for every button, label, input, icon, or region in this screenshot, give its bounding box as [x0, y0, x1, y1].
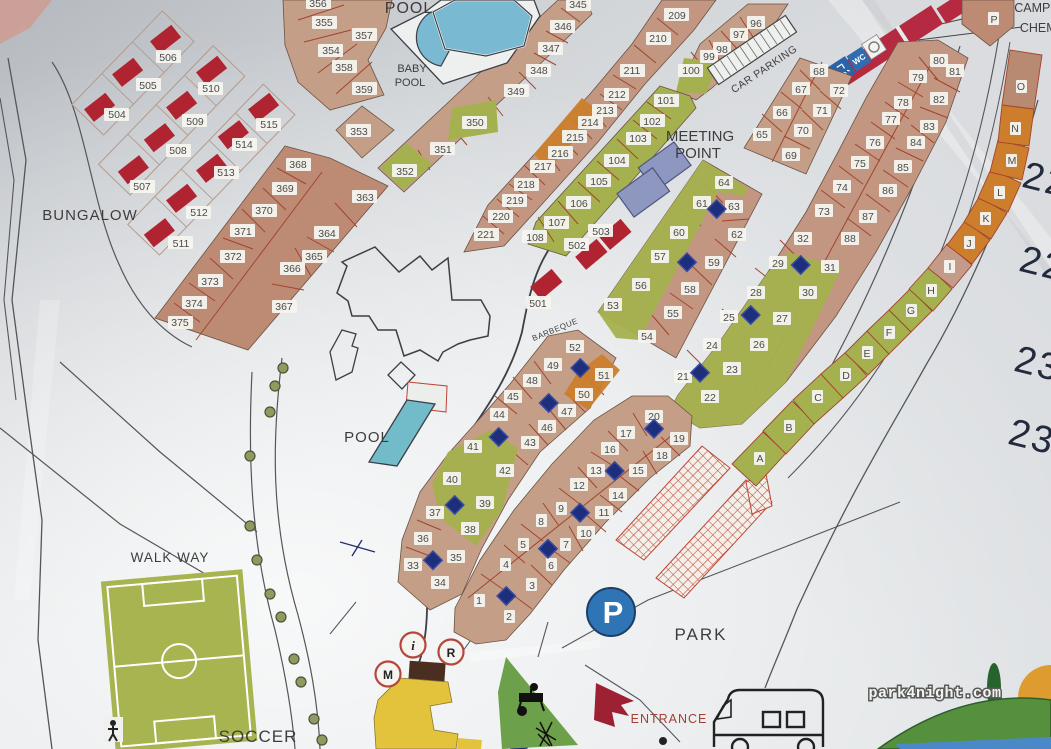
svg-text:508: 508: [169, 145, 187, 157]
svg-text:27: 27: [776, 313, 788, 325]
svg-text:CAMPI: CAMPI: [1014, 1, 1051, 15]
svg-text:47: 47: [561, 406, 573, 418]
svg-text:372: 372: [224, 251, 242, 263]
svg-text:39: 39: [479, 498, 491, 510]
svg-text:42: 42: [499, 465, 511, 477]
svg-text:347: 347: [542, 43, 560, 55]
svg-text:345: 345: [569, 0, 587, 11]
svg-text:44: 44: [493, 409, 505, 421]
svg-text:13: 13: [590, 465, 602, 477]
svg-text:349: 349: [507, 86, 525, 98]
svg-text:107: 107: [548, 217, 566, 229]
svg-text:507: 507: [133, 181, 151, 193]
svg-text:50: 50: [578, 389, 590, 401]
svg-text:348: 348: [530, 65, 548, 77]
svg-text:106: 106: [570, 198, 588, 210]
svg-text:71: 71: [816, 105, 828, 117]
svg-text:83: 83: [923, 121, 935, 133]
svg-text:E: E: [863, 348, 870, 360]
svg-text:218: 218: [517, 179, 535, 191]
svg-text:F: F: [886, 327, 892, 339]
svg-text:79: 79: [912, 72, 924, 84]
svg-text:346: 346: [554, 21, 572, 33]
svg-text:35: 35: [450, 552, 462, 564]
svg-text:513: 513: [217, 167, 235, 179]
svg-text:370: 370: [255, 205, 273, 217]
svg-text:46: 46: [541, 422, 553, 434]
svg-text:365: 365: [305, 251, 323, 263]
svg-text:21: 21: [677, 371, 689, 383]
svg-text:i: i: [411, 638, 415, 653]
svg-text:514: 514: [235, 139, 253, 151]
svg-text:501: 501: [529, 298, 547, 310]
svg-text:G: G: [907, 305, 915, 317]
svg-text:48: 48: [526, 375, 538, 387]
svg-text:88: 88: [844, 233, 856, 245]
svg-text:56: 56: [635, 280, 647, 292]
svg-text:357: 357: [355, 30, 373, 42]
svg-text:A: A: [756, 453, 763, 465]
svg-text:B: B: [785, 422, 792, 434]
svg-text:10: 10: [580, 528, 592, 540]
svg-text:66: 66: [776, 107, 788, 119]
svg-text:MEETING: MEETING: [666, 128, 734, 145]
svg-text:H: H: [927, 285, 935, 297]
svg-text:97: 97: [733, 29, 745, 41]
svg-text:POINT: POINT: [675, 145, 721, 162]
svg-text:31: 31: [824, 262, 836, 274]
svg-text:38: 38: [464, 524, 476, 536]
svg-text:512: 512: [190, 207, 208, 219]
svg-text:510: 510: [202, 83, 220, 95]
svg-text:K: K: [982, 213, 989, 225]
svg-text:64: 64: [718, 177, 730, 189]
svg-text:509: 509: [186, 116, 204, 128]
svg-text:33: 33: [407, 560, 419, 572]
svg-text:O: O: [1017, 81, 1025, 93]
svg-text:POOL: POOL: [385, 0, 433, 17]
svg-text:22: 22: [704, 392, 716, 404]
svg-text:9: 9: [558, 503, 564, 515]
svg-text:74: 74: [836, 182, 848, 194]
svg-text:211: 211: [624, 65, 641, 77]
svg-text:69: 69: [785, 150, 797, 162]
svg-text:363: 363: [356, 192, 374, 204]
svg-text:214: 214: [581, 117, 599, 129]
svg-text:374: 374: [185, 298, 203, 310]
svg-text:502: 502: [568, 240, 586, 252]
svg-text:11: 11: [599, 507, 610, 519]
svg-text:63: 63: [728, 201, 740, 213]
svg-text:503: 503: [592, 226, 610, 238]
svg-text:M: M: [383, 668, 393, 682]
svg-text:84: 84: [910, 137, 922, 149]
svg-text:2: 2: [506, 611, 512, 623]
svg-text:80: 80: [933, 55, 945, 67]
svg-text:WALK WAY: WALK WAY: [131, 550, 210, 565]
svg-text:102: 102: [643, 116, 661, 128]
svg-text:99: 99: [703, 51, 715, 63]
svg-text:68: 68: [813, 66, 825, 78]
svg-text:J: J: [966, 238, 971, 250]
svg-text:351: 351: [434, 144, 452, 156]
svg-text:54: 54: [641, 331, 653, 343]
svg-text:37: 37: [429, 507, 441, 519]
svg-text:85: 85: [897, 162, 909, 174]
svg-text:105: 105: [590, 176, 608, 188]
svg-text:354: 354: [322, 45, 340, 57]
svg-text:I: I: [949, 261, 952, 273]
svg-text:45: 45: [507, 391, 519, 403]
svg-text:30: 30: [802, 287, 814, 299]
svg-text:358: 358: [335, 62, 353, 74]
svg-text:367: 367: [275, 301, 293, 313]
svg-text:511: 511: [173, 238, 190, 250]
svg-text:49: 49: [547, 360, 559, 372]
svg-text:82: 82: [933, 94, 945, 106]
svg-text:32: 32: [797, 233, 809, 245]
svg-text:104: 104: [608, 155, 626, 167]
svg-text:375: 375: [171, 317, 189, 329]
svg-text:515: 515: [260, 119, 278, 131]
svg-text:215: 215: [566, 132, 584, 144]
svg-text:217: 217: [534, 161, 552, 173]
svg-text:350: 350: [466, 117, 484, 129]
svg-text:25: 25: [723, 312, 735, 324]
svg-text:220: 220: [492, 211, 510, 223]
svg-text:1: 1: [476, 595, 482, 607]
svg-text:60: 60: [673, 227, 685, 239]
svg-text:N: N: [1011, 123, 1019, 135]
svg-text:BUNGALOW: BUNGALOW: [42, 207, 138, 224]
svg-text:SOCCER: SOCCER: [219, 727, 298, 746]
svg-text:26: 26: [753, 339, 765, 351]
svg-text:29: 29: [772, 258, 784, 270]
svg-text:18: 18: [656, 450, 668, 462]
svg-text:216: 216: [551, 148, 569, 160]
svg-text:62: 62: [731, 229, 743, 241]
svg-text:65: 65: [756, 129, 768, 141]
svg-text:356: 356: [309, 0, 327, 10]
svg-text:366: 366: [283, 263, 301, 275]
svg-text:3: 3: [529, 580, 535, 592]
svg-text:M: M: [1008, 155, 1017, 167]
svg-text:5: 5: [520, 539, 526, 551]
svg-text:24: 24: [706, 340, 718, 352]
svg-text:4: 4: [503, 559, 509, 571]
svg-text:209: 209: [668, 10, 686, 22]
svg-text:108: 108: [526, 232, 544, 244]
svg-text:55: 55: [667, 308, 679, 320]
svg-text:40: 40: [446, 474, 458, 486]
svg-text:373: 373: [201, 276, 219, 288]
svg-text:POOL: POOL: [344, 429, 390, 446]
svg-text:51: 51: [598, 370, 610, 382]
svg-text:78: 78: [897, 97, 909, 109]
svg-text:8: 8: [538, 516, 544, 528]
svg-text:101: 101: [657, 95, 675, 107]
svg-text:58: 58: [684, 284, 696, 296]
svg-text:213: 213: [596, 105, 614, 117]
svg-text:369: 369: [276, 183, 294, 195]
svg-text:219: 219: [506, 195, 524, 207]
svg-text:364: 364: [318, 228, 336, 240]
svg-text:16: 16: [604, 444, 616, 456]
svg-text:210: 210: [649, 33, 667, 45]
svg-text:19: 19: [673, 433, 685, 445]
svg-text:103: 103: [629, 133, 647, 145]
svg-text:17: 17: [620, 428, 632, 440]
svg-text:61: 61: [696, 198, 708, 210]
svg-text:7: 7: [563, 539, 569, 551]
svg-text:504: 504: [108, 109, 126, 121]
svg-text:76: 76: [869, 137, 881, 149]
svg-text:R: R: [447, 646, 456, 660]
svg-text:park4night.com: park4night.com: [868, 685, 1001, 702]
svg-text:81: 81: [949, 66, 961, 78]
svg-text:87: 87: [862, 211, 874, 223]
svg-text:C: C: [814, 392, 822, 404]
svg-text:23: 23: [726, 364, 738, 376]
svg-text:14: 14: [612, 490, 624, 502]
svg-text:355: 355: [315, 17, 333, 29]
svg-text:52: 52: [569, 342, 581, 354]
svg-text:53: 53: [607, 300, 619, 312]
svg-text:352: 352: [396, 166, 414, 178]
svg-text:506: 506: [159, 52, 177, 64]
svg-text:67: 67: [795, 84, 807, 96]
svg-text:353: 353: [350, 126, 368, 138]
svg-text:36: 36: [417, 533, 429, 545]
svg-text:28: 28: [750, 287, 762, 299]
svg-text:86: 86: [882, 185, 894, 197]
svg-text:PARK: PARK: [674, 625, 727, 644]
svg-text:75: 75: [854, 158, 866, 170]
svg-text:P: P: [603, 595, 624, 630]
svg-text:D: D: [842, 370, 850, 382]
svg-text:371: 371: [234, 226, 252, 238]
svg-text:70: 70: [797, 125, 809, 137]
svg-text:368: 368: [289, 159, 307, 171]
svg-text:100: 100: [682, 65, 700, 77]
svg-text:57: 57: [654, 251, 666, 263]
svg-text:L: L: [997, 187, 1003, 199]
svg-text:43: 43: [524, 437, 536, 449]
svg-text:BABY: BABY: [397, 63, 427, 75]
svg-text:73: 73: [818, 206, 830, 218]
svg-text:505: 505: [139, 80, 157, 92]
svg-text:12: 12: [573, 480, 585, 492]
svg-text:359: 359: [355, 84, 373, 96]
svg-text:41: 41: [467, 441, 479, 453]
svg-text:77: 77: [885, 114, 897, 126]
svg-text:15: 15: [632, 465, 644, 477]
svg-text:212: 212: [608, 89, 626, 101]
svg-text:6: 6: [548, 560, 554, 572]
svg-text:34: 34: [434, 577, 446, 589]
svg-text:CHEMI: CHEMI: [1020, 21, 1051, 35]
svg-text:72: 72: [833, 85, 845, 97]
svg-text:P: P: [990, 14, 997, 26]
svg-text:POOL: POOL: [395, 77, 426, 89]
svg-text:221: 221: [477, 229, 495, 241]
svg-text:96: 96: [750, 18, 762, 30]
svg-text:ENTRANCE: ENTRANCE: [631, 712, 708, 726]
svg-text:59: 59: [708, 257, 720, 269]
